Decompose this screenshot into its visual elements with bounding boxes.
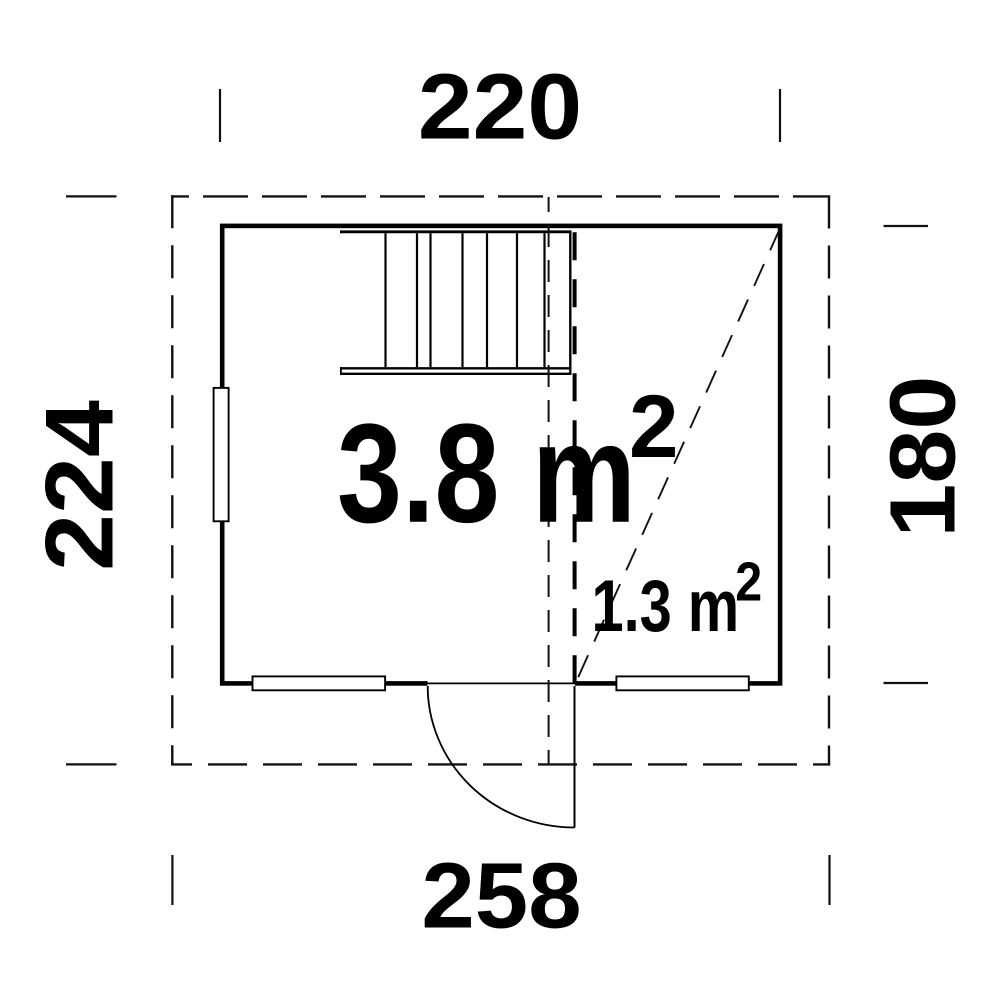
svg-text:2: 2	[629, 376, 679, 476]
svg-text:220: 220	[418, 56, 582, 159]
svg-text:3.8 m: 3.8 m	[337, 396, 636, 553]
svg-text:1.3 m: 1.3 m	[592, 564, 740, 646]
svg-text:2: 2	[735, 551, 762, 613]
svg-text:258: 258	[421, 844, 581, 947]
svg-text:224: 224	[26, 400, 134, 571]
svg-text:180: 180	[871, 376, 975, 538]
